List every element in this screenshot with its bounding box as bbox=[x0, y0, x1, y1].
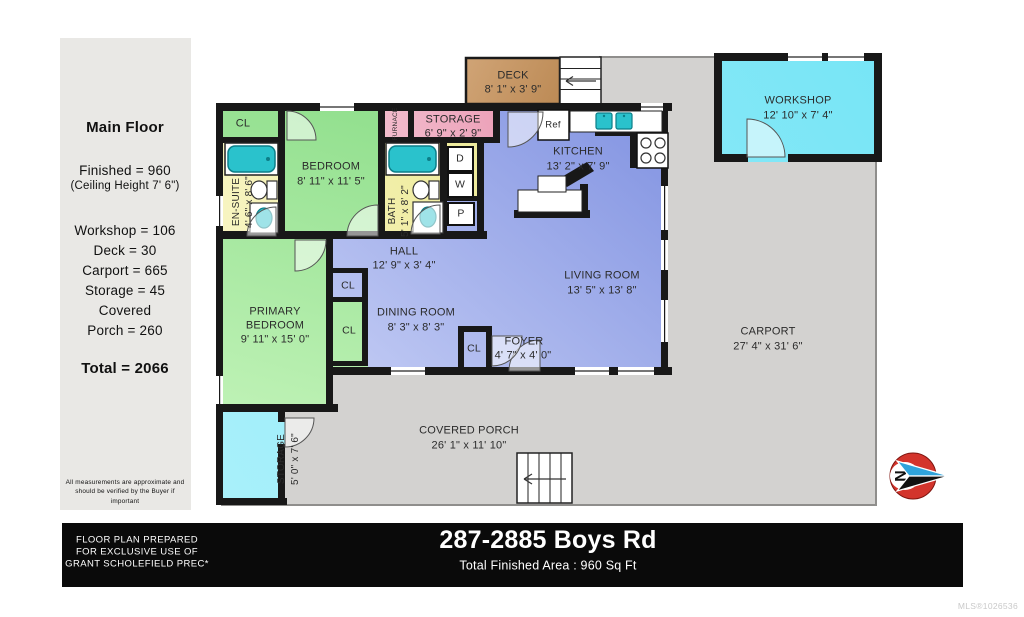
closet-hall-label: CL bbox=[341, 280, 355, 293]
hall-dims: 12' 9" x 3' 4" bbox=[372, 259, 435, 272]
storage-bl-dims: 5' 0" x 7' 6" bbox=[290, 433, 302, 485]
workshop-label: WORKSHOP bbox=[765, 94, 832, 107]
primary-bedroom-dims: 9' 11" x 15' 0" bbox=[241, 333, 310, 346]
kitchen-counter-sinks bbox=[570, 111, 662, 132]
washer-label: W bbox=[455, 179, 465, 192]
bath-toilet bbox=[413, 181, 439, 199]
hall-label: HALL bbox=[390, 245, 418, 258]
dining-room-dims: 8' 3" x 8' 3" bbox=[388, 321, 445, 334]
finished-area: Finished = 960 bbox=[79, 163, 171, 179]
ensuite-dims: 4' 6" x 8' 6" bbox=[244, 176, 256, 228]
fridge-label: Ref bbox=[545, 119, 560, 130]
prepared-line-1: FLOOR PLAN PREPARED bbox=[76, 534, 198, 545]
dryer-label: D bbox=[456, 153, 464, 166]
prepared-line-2: FOR EXCLUSIVE USE OF bbox=[76, 546, 198, 557]
closet-mid-label: CL bbox=[342, 325, 356, 338]
total-area: Total = 2066 bbox=[81, 360, 169, 378]
dining-room-label: DINING ROOM bbox=[377, 306, 455, 319]
compass-icon: N bbox=[890, 453, 949, 499]
closet-tl-label: CL bbox=[236, 117, 250, 130]
storage-top-label: STORAGE bbox=[426, 113, 481, 126]
area-workshop: Workshop = 106 bbox=[74, 223, 175, 239]
primary-bedroom-label-2: BEDROOM bbox=[246, 319, 304, 332]
stove bbox=[637, 133, 668, 168]
ceiling-height: (Ceiling Height 7' 6") bbox=[70, 180, 179, 194]
bedroom-dims: 8' 11" x 11' 5" bbox=[297, 175, 365, 188]
footer-bar: FLOOR PLAN PREPARED FOR EXCLUSIVE USE OF… bbox=[62, 523, 963, 587]
mls-watermark: MLS®1026536 bbox=[958, 601, 1018, 611]
measurements-panel: Main Floor Finished = 960 (Ceiling Heigh… bbox=[60, 38, 191, 510]
covered-porch-dims: 26' 1" x 11' 10" bbox=[432, 439, 507, 452]
area-carport: Carport = 665 bbox=[82, 263, 168, 279]
ensuite-label: EN-SUITE bbox=[231, 178, 243, 226]
floor-plan-page: N DECK 8' 1" x 3' 9" WORKSHOP 12' 10" x … bbox=[0, 0, 1024, 617]
disclaimer: All measurements are approximate and sho… bbox=[62, 478, 188, 506]
covered-porch-label: COVERED PORCH bbox=[419, 424, 519, 437]
ensuite-bathtub bbox=[225, 143, 278, 175]
deck-label: DECK bbox=[497, 69, 528, 82]
prepared-line-3: GRANT SCHOLEFIELD PREC* bbox=[65, 558, 209, 569]
workshop-dims: 12' 10" x 7' 4" bbox=[763, 109, 832, 122]
area-porch: Porch = 260 bbox=[87, 323, 162, 339]
bath-bathtub bbox=[386, 143, 439, 175]
furnace-label: FURNACE bbox=[392, 108, 400, 141]
closet-foyer-label: CL bbox=[467, 343, 481, 356]
deck-stairs bbox=[560, 57, 601, 104]
area-deck: Deck = 30 bbox=[94, 243, 157, 259]
kitchen-dims: 13' 2" x 7' 9" bbox=[546, 160, 609, 173]
pantry-label: P bbox=[457, 208, 464, 221]
deck-dims: 8' 1" x 3' 9" bbox=[485, 83, 542, 96]
area-storage: Storage = 45 bbox=[85, 283, 165, 299]
bath-label: BATH bbox=[387, 198, 399, 225]
kitchen-label: KITCHEN bbox=[553, 145, 603, 158]
bedroom-label: BEDROOM bbox=[302, 160, 360, 173]
primary-bedroom-label-1: PRIMARY bbox=[249, 305, 300, 318]
total-finished-area: Total Finished Area : 960 Sq Ft bbox=[459, 559, 636, 574]
living-room-dims: 13' 5" x 13' 8" bbox=[567, 284, 636, 297]
living-room-label: LIVING ROOM bbox=[564, 269, 640, 282]
storage-top-dims: 6' 9" x 2' 9" bbox=[425, 127, 482, 140]
storage-bl-label: STORAGE bbox=[276, 434, 288, 484]
panel-title: Main Floor bbox=[86, 119, 164, 137]
area-covered: Covered bbox=[99, 303, 151, 319]
foyer-dims: 4' 7" x 4' 0" bbox=[495, 349, 552, 362]
foyer-label: FOYER bbox=[505, 335, 544, 348]
carport-dims: 27' 4" x 31' 6" bbox=[733, 340, 802, 353]
carport-label: CARPORT bbox=[741, 325, 796, 338]
bath-dims: 5' 1" x 8' 2" bbox=[400, 185, 412, 237]
address-title: 287-2885 Boys Rd bbox=[439, 525, 656, 555]
porch-stairs bbox=[517, 453, 572, 503]
